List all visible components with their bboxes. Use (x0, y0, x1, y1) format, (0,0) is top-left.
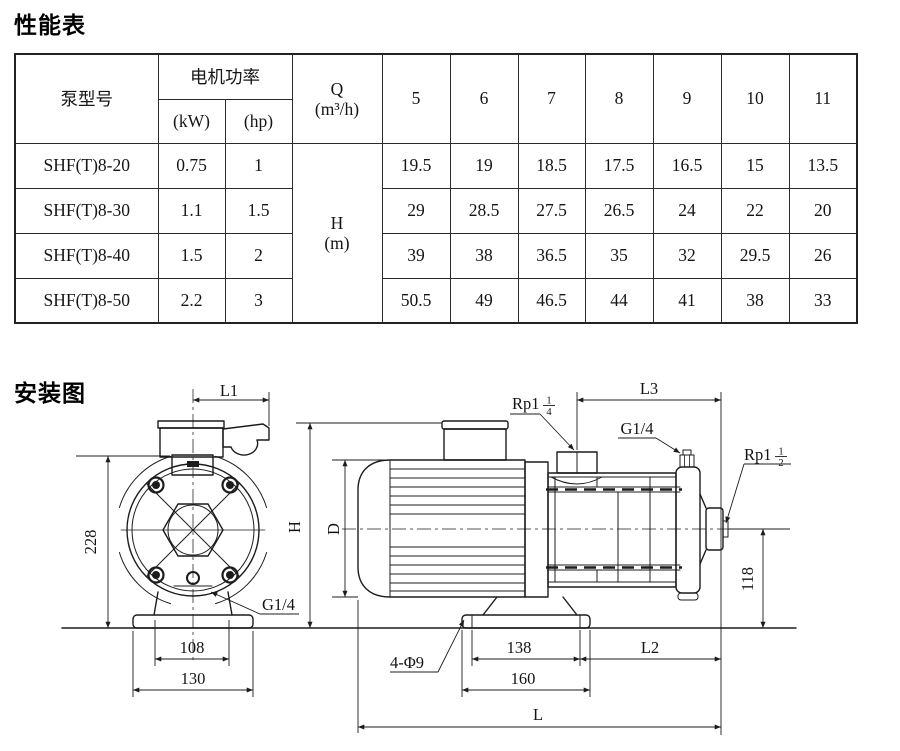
head-value: 41 (653, 278, 721, 323)
flow-symbol: Q (293, 79, 382, 99)
dim-label-118: 118 (738, 567, 757, 591)
kw-value: 1.5 (158, 233, 225, 278)
dim-label-g14-side: G1/4 (621, 419, 654, 438)
head-value: 28.5 (450, 188, 518, 233)
col-header-hp: (hp) (225, 99, 292, 143)
dim-label-130: 130 (181, 669, 206, 688)
head-value: 38 (450, 233, 518, 278)
installation-drawing: L1 228 G1/4 108 130 H D L3 G1/4 118 4-Φ9… (0, 370, 900, 751)
flow-value-header: 10 (721, 54, 789, 143)
stage-joints (546, 477, 682, 582)
head-value: 26 (789, 233, 857, 278)
datasheet-page: 性能表 泵型号 电机功率 Q (m³/h) 5 6 7 8 9 10 11 (k… (0, 0, 900, 751)
svg-text:2: 2 (778, 458, 783, 469)
svg-text:4: 4 (546, 407, 552, 418)
flow-value-header: 5 (382, 54, 450, 143)
head-value: 32 (653, 233, 721, 278)
dim-label-l1: L1 (220, 381, 238, 400)
col-header-power: 电机功率 (158, 54, 292, 99)
dim-label-108: 108 (180, 638, 205, 657)
terminal-box (442, 421, 508, 429)
dim-label-l2: L2 (641, 638, 659, 657)
performance-table-title: 性能表 (14, 6, 86, 40)
svg-text:1: 1 (546, 396, 551, 407)
dim-label-l3: L3 (640, 379, 658, 398)
motor-fins (390, 469, 525, 591)
hp-value: 3 (225, 278, 292, 323)
dim-label-138: 138 (507, 638, 532, 657)
head-value: 39 (382, 233, 450, 278)
dim-label-160: 160 (511, 669, 536, 688)
motor-body (358, 460, 525, 597)
table-row: SHF(T)8-40 1.5 2 39 38 36.5 35 32 29.5 2… (15, 233, 857, 278)
performance-table: 泵型号 电机功率 Q (m³/h) 5 6 7 8 9 10 11 (kW) (… (14, 53, 858, 324)
dim-label-g14-front: G1/4 (262, 595, 295, 614)
head-value: 38 (721, 278, 789, 323)
dim-label-4phi9: 4-Φ9 (390, 653, 424, 672)
head-value: 16.5 (653, 143, 721, 188)
pump-model: SHF(T)8-50 (15, 278, 158, 323)
discharge-spout (223, 424, 269, 455)
head-value: 19.5 (382, 143, 450, 188)
vent-plug (680, 455, 694, 467)
svg-text:Rp1: Rp1 (744, 445, 772, 464)
col-header-kw: (kW) (158, 99, 225, 143)
head-symbol: H (293, 213, 382, 233)
head-value: 36.5 (518, 233, 585, 278)
table-row: SHF(T)8-20 0.75 1 H (m) 19.5 19 18.5 17.… (15, 143, 857, 188)
flow-value-header: 8 (585, 54, 653, 143)
discharge-flange (676, 467, 700, 593)
pump-model: SHF(T)8-20 (15, 143, 158, 188)
dim-label-rp1-1-2: Rp1 1 2 (744, 445, 787, 469)
head-value: 15 (721, 143, 789, 188)
dim-label-l: L (533, 705, 543, 724)
hp-value: 1.5 (225, 188, 292, 233)
head-value: 44 (585, 278, 653, 323)
hp-value: 1 (225, 143, 292, 188)
head-value: 20 (789, 188, 857, 233)
head-value: 33 (789, 278, 857, 323)
flow-value-header: 7 (518, 54, 585, 143)
head-value: 22 (721, 188, 789, 233)
head-value: 13.5 (789, 143, 857, 188)
head-value: 46.5 (518, 278, 585, 323)
head-value: 24 (653, 188, 721, 233)
head-value: 49 (450, 278, 518, 323)
head-value: 18.5 (518, 143, 585, 188)
head-value: 17.5 (585, 143, 653, 188)
svg-text:1: 1 (778, 447, 783, 458)
kw-value: 2.2 (158, 278, 225, 323)
flow-unit: (m³/h) (293, 99, 382, 119)
col-header-flow: Q (m³/h) (292, 54, 382, 143)
head-value: 26.5 (585, 188, 653, 233)
head-value: 50.5 (382, 278, 450, 323)
flow-value-header: 9 (653, 54, 721, 143)
kw-value: 0.75 (158, 143, 225, 188)
head-header: H (m) (292, 143, 382, 323)
flow-value-header: 6 (450, 54, 518, 143)
dim-label-228: 228 (81, 530, 100, 555)
head-value: 35 (585, 233, 653, 278)
head-unit: (m) (293, 233, 382, 253)
head-value: 19 (450, 143, 518, 188)
head-value: 27.5 (518, 188, 585, 233)
kw-value: 1.1 (158, 188, 225, 233)
pump-model: SHF(T)8-40 (15, 233, 158, 278)
pump-model: SHF(T)8-30 (15, 188, 158, 233)
svg-text:Rp1: Rp1 (512, 394, 540, 413)
pump-front-view (119, 389, 269, 664)
head-value: 29.5 (721, 233, 789, 278)
table-row: SHF(T)8-50 2.2 3 50.5 49 46.5 44 41 38 3… (15, 278, 857, 323)
head-value: 29 (382, 188, 450, 233)
table-row: SHF(T)8-30 1.1 1.5 29 28.5 27.5 26.5 24 … (15, 188, 857, 233)
hp-value: 2 (225, 233, 292, 278)
dim-label-h: H (285, 521, 304, 533)
pump-side-view (62, 421, 796, 628)
flow-value-header: 11 (789, 54, 857, 143)
dim-label-d: D (324, 523, 343, 535)
col-header-model: 泵型号 (15, 54, 158, 143)
